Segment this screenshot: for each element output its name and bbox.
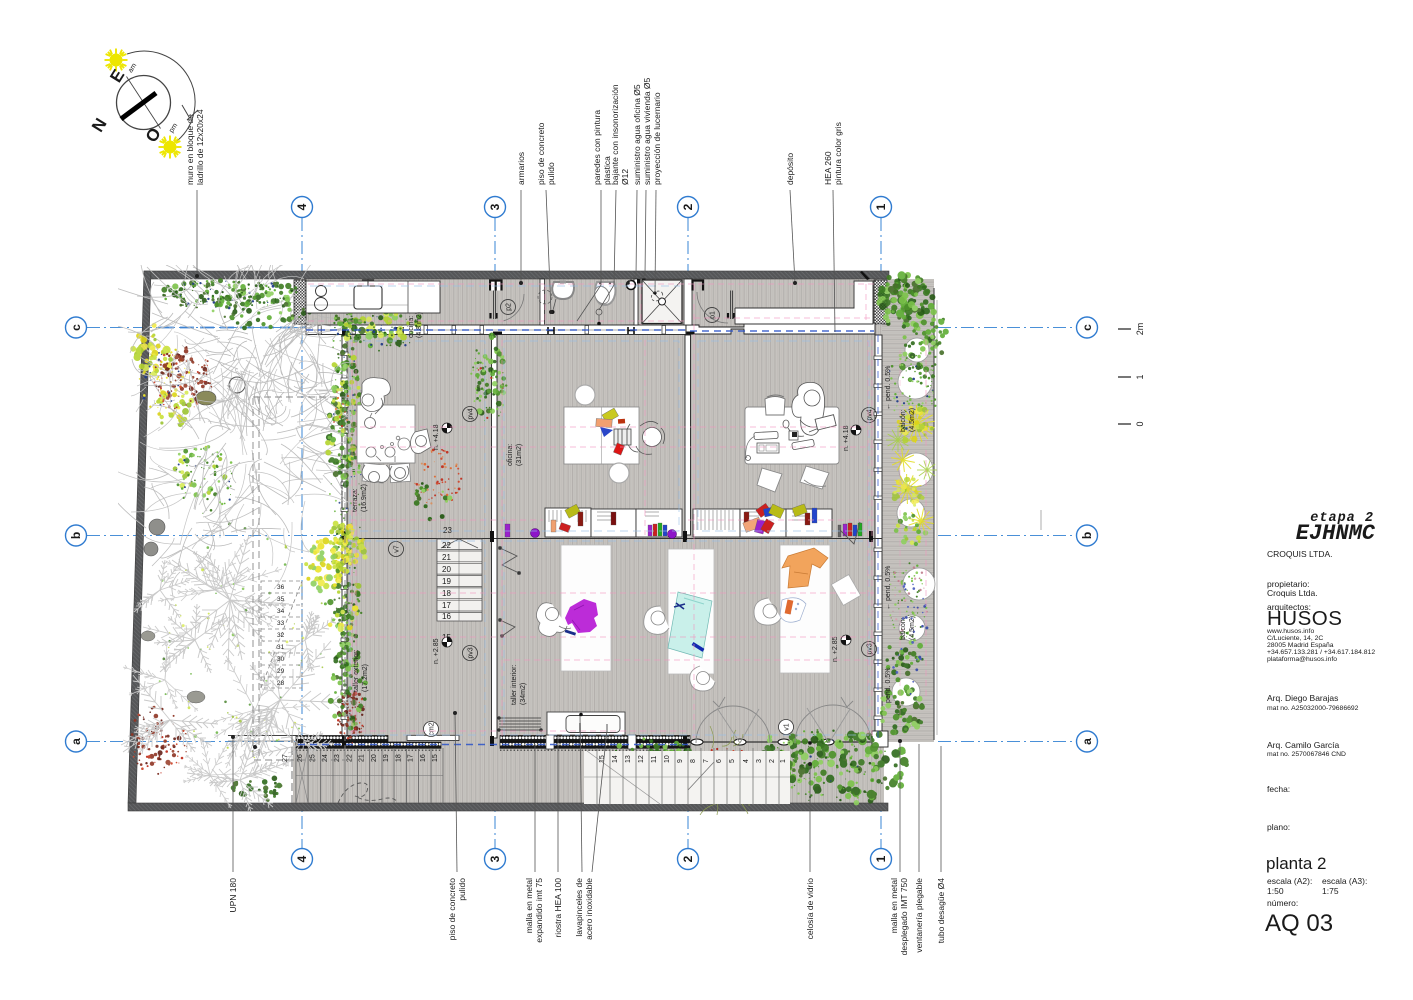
svg-text:armarios: armarios	[516, 152, 526, 185]
svg-text:pend. 0.5%: pend. 0.5%	[885, 668, 892, 703]
svg-text:16: 16	[420, 754, 427, 762]
svg-text:4: 4	[743, 759, 750, 763]
svg-text:Arq. Camilo García: Arq. Camilo García	[1267, 740, 1340, 750]
svg-text:C/Luciente, 14, 2C: C/Luciente, 14, 2C	[1267, 635, 1323, 642]
svg-text:balcón:: balcón:	[900, 409, 907, 432]
svg-text:25: 25	[310, 754, 317, 762]
svg-text:depósito: depósito	[785, 153, 795, 185]
svg-text:pulido: pulido	[546, 162, 556, 185]
svg-text:suministro agua vivienda Ø5: suministro agua vivienda Ø5	[642, 77, 652, 185]
svg-text:lavapinceles de: lavapinceles de	[574, 878, 584, 937]
svg-text:Arq. Diego Barajas: Arq. Diego Barajas	[1267, 693, 1338, 703]
svg-text:(4.5m2): (4.5m2)	[909, 408, 916, 432]
svg-text:35: 35	[277, 596, 285, 603]
svg-text:17: 17	[442, 601, 451, 610]
svg-text:balcón:: balcón:	[900, 617, 907, 640]
svg-text:terraza:: terraza:	[352, 488, 359, 512]
svg-text:32: 32	[277, 632, 285, 639]
svg-text:13: 13	[625, 755, 632, 763]
svg-text:14: 14	[612, 755, 619, 763]
svg-text:26: 26	[297, 754, 304, 762]
svg-text:tubo desagüe Ø4: tubo desagüe Ø4	[936, 878, 946, 943]
svg-text:ladrillo de 12x20x24: ladrillo de 12x20x24	[195, 109, 205, 185]
svg-text:6: 6	[716, 759, 723, 763]
svg-text:(34m2): (34m2)	[520, 683, 527, 705]
svg-text:4: 4	[295, 855, 309, 862]
svg-text:b: b	[1080, 532, 1094, 539]
svg-text:pv4: pv4	[468, 408, 475, 419]
svg-text:pv3: pv3	[468, 647, 475, 658]
svg-text:7: 7	[703, 759, 710, 763]
svg-text:10: 10	[664, 755, 671, 763]
svg-text:c: c	[69, 324, 83, 331]
svg-text:1:50: 1:50	[1267, 886, 1284, 896]
svg-text:9: 9	[677, 759, 684, 763]
svg-text:paredes con pintura: paredes con pintura	[592, 110, 602, 185]
svg-text:HUSOS: HUSOS	[1267, 607, 1342, 630]
svg-text:19: 19	[383, 754, 390, 762]
svg-text:a: a	[1080, 738, 1094, 745]
svg-text:0: 0	[1135, 421, 1145, 426]
svg-text:23: 23	[334, 754, 341, 762]
svg-text:malla en metal: malla en metal	[889, 878, 899, 933]
svg-text:acero inoxidable: acero inoxidable	[584, 878, 594, 940]
svg-text:pintura color gris: pintura color gris	[833, 122, 843, 185]
svg-text:pulido: pulido	[457, 878, 467, 901]
svg-text:27: 27	[282, 754, 289, 762]
svg-text:11: 11	[651, 756, 658, 763]
svg-text:riostra HEA 100: riostra HEA 100	[553, 878, 563, 938]
svg-text:2m: 2m	[1135, 323, 1145, 336]
svg-text:← pend. 0.5%: ← pend. 0.5%	[885, 566, 892, 610]
svg-text:n. +4.18: n. +4.18	[433, 424, 440, 450]
svg-text:1:75: 1:75	[1322, 886, 1339, 896]
svg-text:expandido imt 75: expandido imt 75	[534, 878, 544, 943]
svg-text:AQ 03: AQ 03	[1265, 910, 1333, 937]
svg-text:bajante con insonorización: bajante con insonorización	[610, 84, 620, 185]
svg-text:21: 21	[359, 754, 366, 762]
svg-text:1: 1	[874, 203, 888, 210]
svg-text:n. +2.85: n. +2.85	[832, 636, 839, 662]
svg-text:(4.8 m2): (4.8 m2)	[416, 312, 423, 338]
svg-text:proyección de lucernario: proyección de lucernario	[652, 92, 662, 185]
svg-text:n. +2.85: n. +2.85	[433, 638, 440, 664]
svg-text:b: b	[69, 532, 83, 539]
svg-text:HEA 260: HEA 260	[823, 151, 833, 185]
svg-text:fecha:: fecha:	[1267, 784, 1290, 794]
svg-text:pv3: pv3	[867, 643, 874, 654]
svg-text:28: 28	[277, 680, 285, 687]
svg-text:(4.5m2): (4.5m2)	[909, 616, 916, 640]
svg-text:+34.657.133.281 / +34.617.184.: +34.657.133.281 / +34.617.184.812	[1267, 649, 1375, 656]
svg-text:18: 18	[442, 589, 451, 598]
svg-text:1: 1	[780, 759, 787, 763]
svg-text:15: 15	[432, 754, 439, 762]
svg-text:v7: v7	[394, 545, 401, 553]
svg-text:2: 2	[769, 759, 776, 763]
svg-text:cocina:: cocina:	[408, 316, 415, 338]
svg-text:16: 16	[442, 612, 451, 621]
svg-text:23: 23	[443, 526, 452, 535]
svg-text:taller exterior:: taller exterior:	[353, 650, 360, 692]
svg-text:1: 1	[1135, 374, 1145, 379]
svg-text:8: 8	[690, 759, 697, 763]
svg-text:plataforma@husos.info: plataforma@husos.info	[1267, 656, 1337, 663]
svg-text:mat no. 2570067846 CND: mat no. 2570067846 CND	[1267, 751, 1346, 758]
svg-text:2: 2	[681, 855, 695, 862]
svg-text:(16.9m2): (16.9m2)	[361, 484, 368, 512]
svg-text:piso de concreto: piso de concreto	[536, 122, 546, 185]
svg-text:Ø12: Ø12	[620, 169, 630, 185]
svg-text:20: 20	[371, 754, 378, 762]
svg-text:pv4: pv4	[867, 409, 874, 420]
svg-text:21: 21	[442, 553, 451, 562]
svg-text:5: 5	[729, 759, 736, 763]
svg-text:1: 1	[874, 855, 888, 862]
svg-text:3: 3	[488, 855, 502, 862]
svg-text:22: 22	[442, 541, 451, 550]
svg-text:15: 15	[599, 755, 606, 763]
svg-text:desplegado IMT 750: desplegado IMT 750	[899, 878, 909, 956]
svg-text:EJHNMC: EJHNMC	[1296, 521, 1376, 546]
svg-text:20: 20	[442, 565, 451, 574]
svg-text:escala (A2):: escala (A2):	[1267, 876, 1312, 886]
svg-text:piso de concreto: piso de concreto	[447, 878, 457, 941]
svg-text:suministro agua oficina Ø5: suministro agua oficina Ø5	[632, 84, 642, 185]
svg-text:34: 34	[277, 608, 285, 615]
svg-text:← pend. 0.5%: ← pend. 0.5%	[885, 366, 892, 410]
svg-text:mat no. A25032000-79686692: mat no. A25032000-79686692	[1267, 705, 1359, 712]
svg-text:c: c	[1080, 324, 1094, 331]
svg-text:a: a	[69, 738, 83, 745]
svg-text:36: 36	[277, 584, 285, 591]
svg-text:12: 12	[638, 755, 645, 763]
svg-text:malla en metal: malla en metal	[524, 878, 534, 933]
svg-text:escala (A3):: escala (A3):	[1322, 876, 1367, 886]
svg-text:v1: v1	[784, 723, 791, 731]
svg-text:33: 33	[277, 620, 285, 627]
svg-text:celosía de vidrio: celosía de vidrio	[805, 878, 815, 940]
svg-text:19: 19	[442, 577, 451, 586]
svg-text:plano:: plano:	[1267, 822, 1290, 832]
svg-text:Croquis Ltda.: Croquis Ltda.	[1267, 588, 1318, 598]
svg-text:p2: p2	[506, 303, 513, 311]
svg-text:22: 22	[347, 754, 354, 762]
svg-text:ventanería plegable: ventanería plegable	[914, 878, 924, 953]
svg-text:17: 17	[408, 754, 415, 762]
svg-text:(17.2m2): (17.2m2)	[362, 664, 369, 692]
svg-text:UPN 180: UPN 180	[228, 878, 238, 913]
svg-text:www.husos.info: www.husos.info	[1266, 628, 1314, 635]
svg-text:28005 Madrid España: 28005 Madrid España	[1267, 642, 1334, 649]
svg-text:cm2: cm2	[429, 722, 436, 735]
svg-text:30: 30	[277, 656, 285, 663]
svg-text:taller interior:: taller interior:	[511, 664, 518, 705]
svg-text:planta 2: planta 2	[1266, 854, 1327, 873]
svg-text:3: 3	[756, 759, 763, 763]
svg-text:29: 29	[277, 668, 285, 675]
svg-text:24: 24	[322, 754, 329, 762]
svg-text:18: 18	[396, 754, 403, 762]
svg-text:3: 3	[488, 203, 502, 210]
svg-text:2: 2	[681, 203, 695, 210]
svg-text:CROQUIS LTDA.: CROQUIS LTDA.	[1267, 549, 1333, 559]
svg-text:4: 4	[295, 203, 309, 210]
svg-text:31: 31	[277, 644, 285, 651]
svg-text:número:: número:	[1267, 898, 1298, 908]
